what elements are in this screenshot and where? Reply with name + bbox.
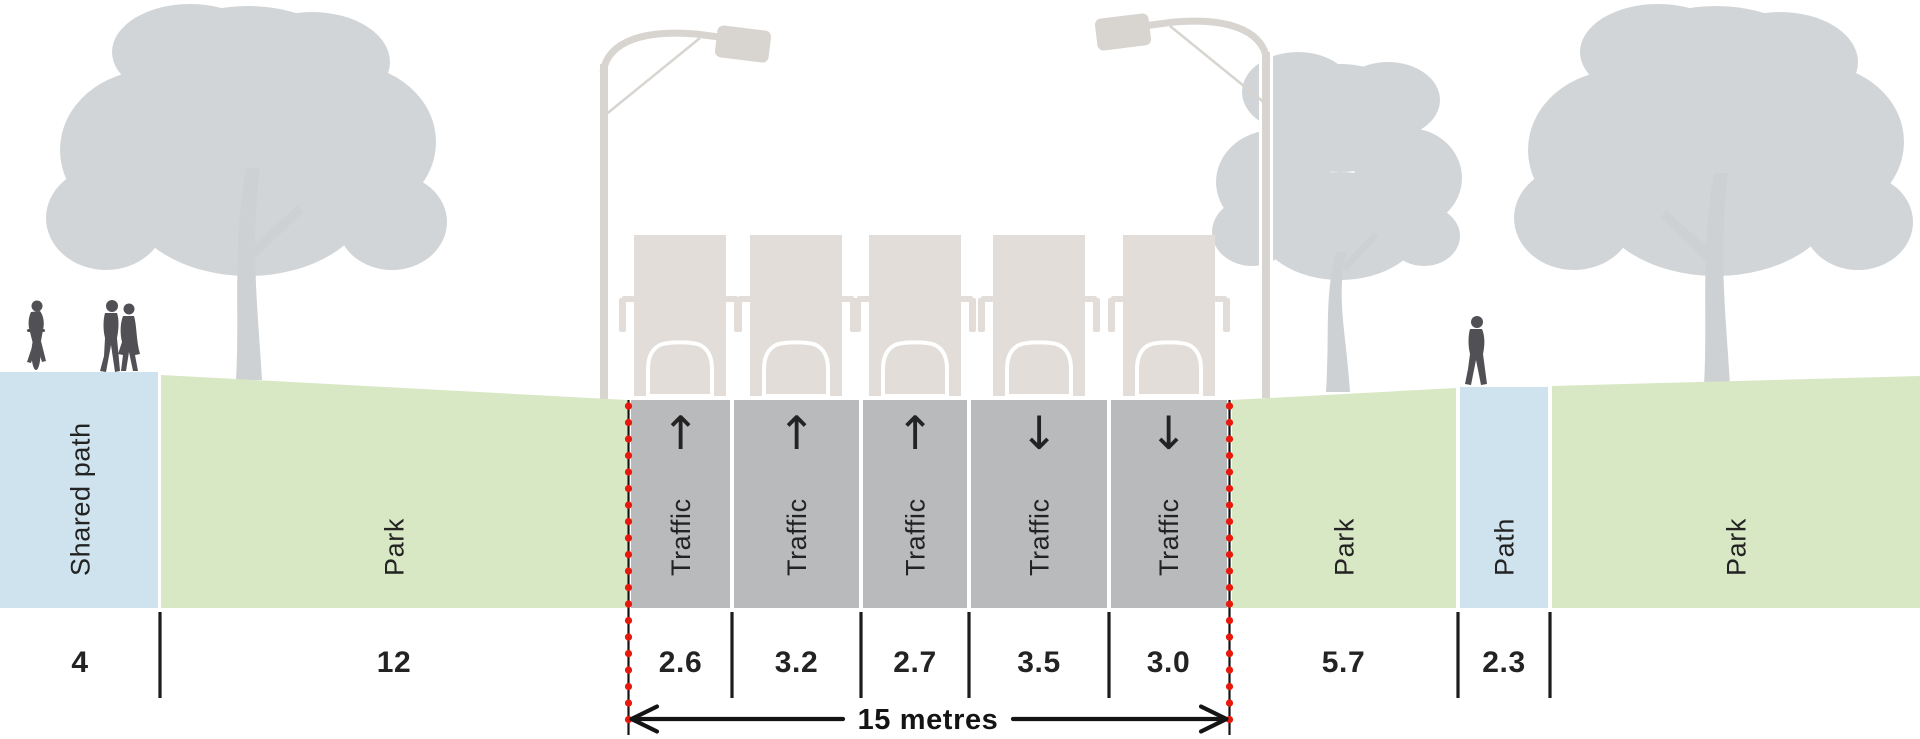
truck-icon [978, 235, 1100, 396]
truck-icon [619, 235, 741, 396]
lane-direction-up-icon: ↑ [661, 406, 700, 460]
lane-direction-up-icon: ↑ [896, 406, 935, 460]
ground-blocks [0, 372, 1920, 608]
segment-width-value: 3.2 [775, 646, 819, 679]
segment-label: Traffic [666, 498, 696, 576]
segment-label: Park [380, 518, 410, 576]
segment-width-value: 12 [377, 646, 412, 679]
segment-label: Traffic [1025, 498, 1055, 576]
segment-width-value: 4 [71, 646, 88, 679]
diagram-canvas: Shared path Park Traffic Traffic Traffic… [0, 0, 1920, 739]
segment-width-value: 3.5 [1017, 646, 1061, 679]
segment-label: Traffic [782, 498, 812, 576]
lane-direction-down-icon: ↓ [1149, 406, 1188, 460]
truck-icon [735, 235, 857, 396]
street-cross-section-diagram: Shared path Park Traffic Traffic Traffic… [0, 0, 1920, 739]
segment-label: Park [1722, 518, 1752, 576]
segment-width-value: 2.7 [893, 646, 937, 679]
segment-label: Traffic [1154, 498, 1184, 576]
segment-label: Shared path [66, 422, 96, 576]
truck-icon [854, 235, 976, 396]
segment-width-value: 2.3 [1482, 646, 1526, 679]
segment-width-value: 5.7 [1322, 646, 1366, 679]
segment-label: Traffic [901, 498, 931, 576]
segment-width-value: 3.0 [1147, 646, 1191, 679]
dimension-label: 15 metres [858, 704, 999, 736]
lane-direction-up-icon: ↑ [777, 406, 816, 460]
lane-direction-down-icon: ↓ [1020, 406, 1059, 460]
segment-label: Path [1490, 518, 1520, 576]
truck-icon [1108, 235, 1230, 396]
segment-width-value: 2.6 [659, 646, 703, 679]
segment-label: Park [1330, 518, 1360, 576]
